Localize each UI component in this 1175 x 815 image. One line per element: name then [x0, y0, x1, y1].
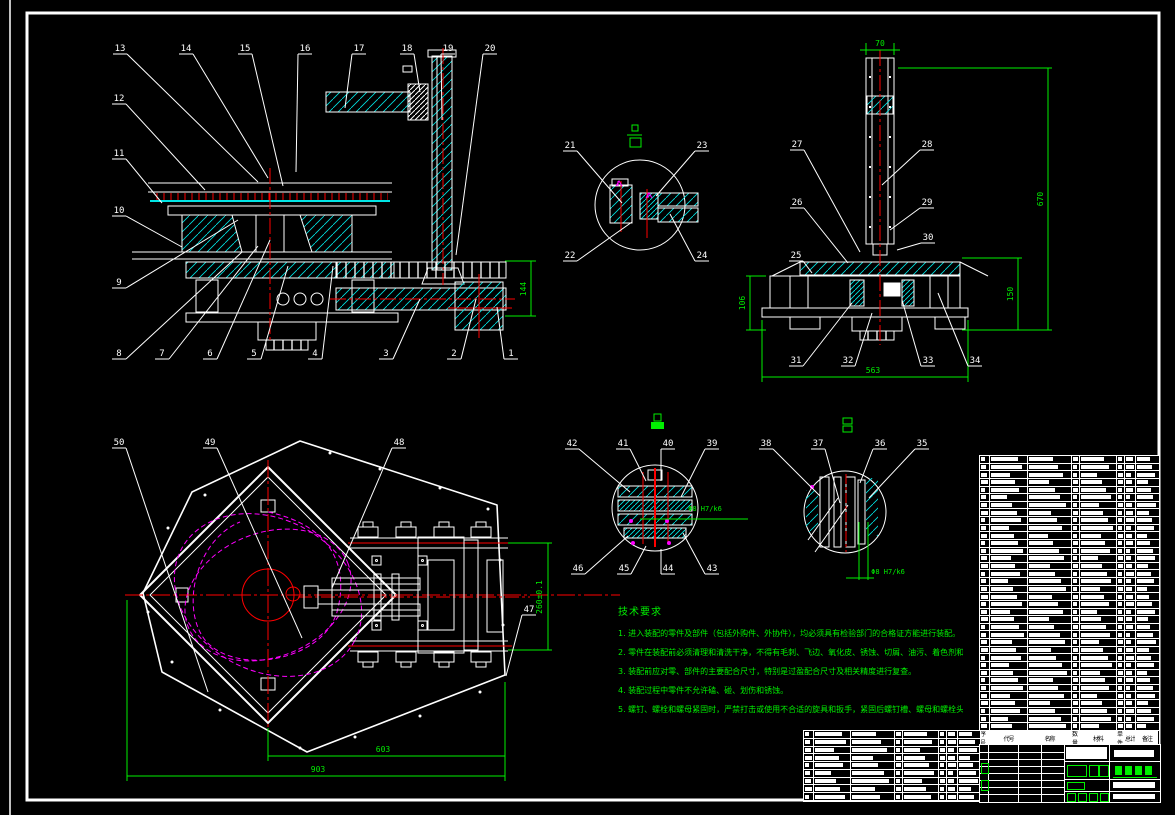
bom-cell	[903, 770, 940, 777]
bom-cell	[1080, 715, 1117, 722]
bom-cell	[1125, 586, 1136, 593]
bom-cell	[1072, 464, 1080, 471]
bom-cell	[1072, 517, 1080, 524]
bom-cell	[958, 770, 980, 777]
technical-requirements-title: 技术要求	[618, 603, 963, 618]
detail-view-bottom-right	[804, 471, 886, 553]
part-callout-20: 20	[456, 44, 497, 255]
bom-cell	[980, 586, 990, 593]
titleblock-green-cell	[1089, 765, 1099, 777]
bom-cell	[980, 715, 990, 722]
bom-cell	[990, 670, 1028, 677]
bom-cell	[980, 700, 990, 707]
bom-row	[804, 731, 980, 739]
bom-cell	[1125, 616, 1136, 623]
titleblock-row-line	[980, 780, 1064, 781]
bom-cell	[1117, 700, 1125, 707]
bom-cell	[1125, 517, 1136, 524]
bom-cell	[1136, 723, 1158, 730]
bom-cell	[980, 593, 990, 600]
part-callout-50: 50	[112, 438, 208, 692]
bom-cell	[1028, 456, 1072, 463]
bom-cell	[814, 754, 852, 761]
titleblock-green-cell	[1067, 765, 1087, 777]
bom-cell	[1125, 525, 1136, 532]
svg-text:46: 46	[573, 564, 584, 574]
bom-cell	[895, 785, 903, 792]
part-callout-41: 41	[616, 439, 646, 481]
bom-cell	[1080, 670, 1117, 677]
bom-row	[980, 471, 1159, 479]
part-callout-12: 12	[112, 94, 205, 190]
bom-cell	[1080, 616, 1117, 623]
bom-cell	[1028, 479, 1072, 486]
bom-cell	[990, 685, 1028, 692]
bom-cell	[1136, 479, 1158, 486]
part-callout-49: 49	[203, 438, 302, 638]
bom-cell	[1072, 639, 1080, 646]
bom-cell	[1117, 563, 1125, 570]
svg-text:48: 48	[394, 438, 405, 448]
bom-cell	[990, 563, 1028, 570]
bom-cell	[903, 762, 940, 769]
bom-cell	[958, 778, 980, 785]
bom-cell	[990, 586, 1028, 593]
bom-cell	[990, 570, 1028, 577]
bom-cell	[1136, 586, 1158, 593]
bom-cell	[1125, 609, 1136, 616]
bom-cell	[1072, 593, 1080, 600]
bom-header-2: 代号	[990, 731, 1028, 745]
bom-cell	[1125, 654, 1136, 661]
bom-cell	[1080, 677, 1117, 684]
bom-cell	[990, 654, 1028, 661]
bom-cell	[1072, 692, 1080, 699]
part-callout-36: 36	[860, 439, 887, 483]
bom-cell	[804, 747, 814, 754]
bom-cell	[1080, 532, 1117, 539]
bom-cell	[958, 785, 980, 792]
bom-cell	[980, 479, 990, 486]
bom-cell	[1080, 563, 1117, 570]
svg-text:36: 36	[875, 439, 886, 449]
bolt-holes	[147, 452, 505, 750]
titleblock-row-line	[1109, 779, 1160, 780]
bom-cell	[939, 793, 947, 800]
svg-text:9: 9	[116, 278, 121, 288]
bom-cell	[980, 662, 990, 669]
bom-cell	[1080, 540, 1117, 547]
bom-cell	[1125, 670, 1136, 677]
bom-row	[804, 754, 980, 762]
bom-cell	[1080, 692, 1117, 699]
titleblock-stamp-cell	[1066, 747, 1107, 759]
bom-cell	[1136, 540, 1158, 547]
dimension-text-670: 670	[1036, 192, 1045, 207]
bom-cell	[1080, 624, 1117, 631]
svg-text:49: 49	[205, 438, 216, 448]
svg-text:40: 40	[663, 439, 674, 449]
bom-cell	[990, 548, 1028, 555]
bom-cell	[804, 785, 814, 792]
parts-list-table	[979, 455, 1160, 731]
svg-text:12: 12	[114, 94, 125, 104]
titleblock-text-bar	[1113, 794, 1155, 799]
svg-text:45: 45	[619, 564, 630, 574]
bom-cell	[1136, 563, 1158, 570]
bom-row	[804, 785, 980, 793]
bom-cell	[1136, 647, 1158, 654]
bom-cell	[1136, 616, 1158, 623]
bom-cell	[1117, 715, 1125, 722]
bom-row	[980, 479, 1159, 487]
view-front-elevation	[132, 48, 515, 350]
bom-cell	[980, 631, 990, 638]
bom-cell	[1117, 616, 1125, 623]
bom-cell	[1117, 692, 1125, 699]
bom-cell	[895, 770, 903, 777]
bom-cell	[1028, 654, 1072, 661]
part-callout-47: 47	[506, 605, 536, 676]
bom-cell	[980, 563, 990, 570]
bom-cell	[1117, 525, 1125, 532]
svg-text:44: 44	[663, 564, 674, 574]
bom-cell	[980, 677, 990, 684]
bom-cell	[1117, 494, 1125, 501]
bom-cell	[1028, 509, 1072, 516]
bom-cell	[804, 793, 814, 800]
bom-cell	[1117, 708, 1125, 715]
titleblock-green-cell	[1067, 782, 1085, 790]
bom-cell	[1028, 593, 1072, 600]
bom-cell	[1117, 471, 1125, 478]
bom-row	[980, 532, 1159, 540]
bom-cell	[990, 555, 1028, 562]
bom-cell	[980, 570, 990, 577]
bom-cell	[939, 754, 947, 761]
bom-cell	[1028, 662, 1072, 669]
title-block	[979, 744, 1161, 803]
bom-cell	[1117, 685, 1125, 692]
svg-text:2: 2	[451, 349, 456, 359]
titleblock-row-line	[980, 759, 1064, 760]
bom-cell	[980, 525, 990, 532]
bom-cell	[1136, 532, 1158, 539]
bom-cell	[1028, 616, 1072, 623]
bom-cell	[939, 739, 947, 746]
bom-cell	[1072, 555, 1080, 562]
bom-cell	[903, 731, 940, 738]
dimension-text-70: 70	[875, 39, 885, 48]
dimension-text-903: 903	[311, 765, 326, 774]
bom-cell	[980, 555, 990, 562]
bom-row	[980, 624, 1159, 632]
bom-row	[980, 502, 1159, 510]
bom-cell	[990, 525, 1028, 532]
bom-cell	[990, 502, 1028, 509]
bom-cell	[814, 770, 852, 777]
bom-cell	[980, 601, 990, 608]
bom-cell	[1136, 555, 1158, 562]
bom-cell	[1125, 685, 1136, 692]
bom-cell	[1125, 692, 1136, 699]
bom-cell	[1028, 548, 1072, 555]
bom-cell	[1028, 685, 1072, 692]
bom-cell	[958, 739, 980, 746]
bom-cell	[1072, 540, 1080, 547]
bom-cell	[1125, 570, 1136, 577]
bom-cell	[939, 731, 947, 738]
bom-cell	[851, 770, 895, 777]
bom-cell	[947, 747, 958, 754]
titleblock-green-cell	[1078, 793, 1087, 802]
bom-cell	[1117, 624, 1125, 631]
bom-cell	[1125, 540, 1136, 547]
bom-cell	[990, 708, 1028, 715]
bom-header-6: 单件	[1117, 731, 1125, 745]
bom-cell	[990, 616, 1028, 623]
bom-cell	[895, 778, 903, 785]
bom-cell	[1125, 494, 1136, 501]
bom-cell	[903, 785, 940, 792]
bom-cell	[814, 778, 852, 785]
bom-cell	[1136, 654, 1158, 661]
svg-text:27: 27	[792, 140, 803, 150]
bom-cell	[980, 578, 990, 585]
bom-cell	[1125, 677, 1136, 684]
bom-cell	[1072, 631, 1080, 638]
view-plan	[125, 441, 620, 752]
bom-cell	[1080, 509, 1117, 516]
svg-text:23: 23	[697, 141, 708, 151]
bom-cell	[1125, 639, 1136, 646]
bom-cell	[1072, 685, 1080, 692]
bom-row	[980, 715, 1159, 723]
bom-cell	[958, 731, 980, 738]
svg-text:4: 4	[312, 349, 317, 359]
bom-cell	[1080, 555, 1117, 562]
bom-cell	[980, 654, 990, 661]
bom-cell	[1072, 586, 1080, 593]
detail-view-top	[595, 160, 698, 250]
svg-text:50: 50	[114, 438, 125, 448]
svg-text:33: 33	[923, 356, 934, 366]
bom-cell	[1080, 586, 1117, 593]
bom-cell	[1136, 456, 1158, 463]
part-callout-23: 23	[656, 141, 709, 196]
bom-cell	[804, 754, 814, 761]
bom-row	[804, 778, 980, 786]
bom-cell	[1136, 631, 1158, 638]
dimension-text-603: 603	[376, 745, 391, 754]
titleblock-row-line	[980, 773, 1064, 774]
bom-cell	[1080, 525, 1117, 532]
bom-cell	[990, 662, 1028, 669]
technical-requirements: 技术要求 1. 进入装配的零件及部件（包括外购件、外协件），均必须具有检验部门的…	[618, 603, 963, 719]
bom-cell	[814, 793, 852, 800]
drawing-title-underline	[1113, 777, 1157, 778]
bom-cell	[1028, 586, 1072, 593]
bom-cell	[1117, 570, 1125, 577]
bom-row	[980, 464, 1159, 472]
bom-row	[804, 770, 980, 778]
bom-cell	[1072, 715, 1080, 722]
bom-cell	[1125, 509, 1136, 516]
bom-cell	[1080, 708, 1117, 715]
part-callout-27: 27	[790, 140, 860, 252]
bom-cell	[1080, 700, 1117, 707]
bom-cell	[903, 739, 940, 746]
bom-cell	[804, 762, 814, 769]
bom-cell	[1028, 647, 1072, 654]
bom-row	[980, 631, 1159, 639]
bom-cell	[1125, 723, 1136, 730]
bom-cell	[1080, 456, 1117, 463]
bom-cell	[980, 502, 990, 509]
part-callout-48: 48	[332, 438, 406, 588]
bom-cell	[947, 731, 958, 738]
titleblock-green-cell	[1089, 793, 1098, 802]
bom-cell	[1080, 494, 1117, 501]
bom-cell	[1125, 700, 1136, 707]
bom-cell	[1028, 563, 1072, 570]
bom-cell	[980, 517, 990, 524]
bom-cell	[1080, 464, 1117, 471]
bom-cell	[1117, 631, 1125, 638]
svg-text:26: 26	[792, 198, 803, 208]
bom-cell	[990, 540, 1028, 547]
bom-cell	[1072, 662, 1080, 669]
bom-cell	[939, 762, 947, 769]
svg-text:8: 8	[116, 349, 121, 359]
bom-cell	[1125, 563, 1136, 570]
bom-cell	[1136, 700, 1158, 707]
bom-cell	[980, 647, 990, 654]
bom-cell	[1072, 525, 1080, 532]
part-callout-45: 45	[617, 546, 646, 574]
dimension-text-144: 144	[519, 282, 528, 297]
bom-cell	[1117, 548, 1125, 555]
bom-row	[980, 456, 1159, 464]
bom-cell	[1136, 692, 1158, 699]
bom-cell	[990, 487, 1028, 494]
titleblock-row-line	[1064, 761, 1109, 762]
bom-cell	[990, 578, 1028, 585]
bom-cell	[895, 793, 903, 800]
bom-cell	[1136, 715, 1158, 722]
bom-cell	[947, 762, 958, 769]
drawing-sheet: 1314151617181920121110987654321212322242…	[0, 0, 1175, 815]
bom-cell	[1072, 509, 1080, 516]
bom-cell	[990, 456, 1028, 463]
svg-text:47: 47	[524, 605, 535, 615]
dimension-text-106: 106	[738, 296, 747, 311]
bom-cell	[1117, 540, 1125, 547]
note-line: 1. 进入装配的零件及部件（包括外购件、外协件），均必须具有检验部门的合格证方能…	[618, 624, 963, 643]
svg-text:43: 43	[707, 564, 718, 574]
titleblock-row-line	[1064, 779, 1109, 780]
part-callout-33: 33	[902, 300, 935, 366]
titleblock-text-bar	[1114, 750, 1154, 757]
part-callout-22: 22	[563, 222, 632, 261]
bom-cell	[990, 464, 1028, 471]
svg-text:15: 15	[240, 44, 251, 54]
bom-cell	[990, 647, 1028, 654]
bom-cell	[990, 700, 1028, 707]
titleblock-green-cell	[1100, 793, 1109, 802]
bom-cell	[1136, 639, 1158, 646]
bom-cell	[895, 747, 903, 754]
titleblock-green-cell	[1067, 793, 1076, 802]
bom-cell	[1028, 670, 1072, 677]
bom-cell	[903, 747, 940, 754]
bom-cell	[851, 778, 895, 785]
drawing-title-glyph	[1115, 766, 1122, 775]
bom-cell	[980, 509, 990, 516]
svg-text:6: 6	[207, 349, 212, 359]
svg-text:41: 41	[618, 439, 629, 449]
svg-text:7: 7	[159, 349, 164, 359]
bom-cell	[1028, 715, 1072, 722]
bom-cell	[1072, 563, 1080, 570]
bom-row	[804, 793, 980, 801]
bom-cell	[851, 754, 895, 761]
bom-row	[980, 525, 1159, 533]
bom-cell	[895, 762, 903, 769]
bom-cell	[990, 601, 1028, 608]
svg-text:29: 29	[922, 198, 933, 208]
svg-text:22: 22	[565, 251, 576, 261]
bom-cell	[1136, 601, 1158, 608]
bom-cell	[1125, 502, 1136, 509]
bom-cell	[851, 739, 895, 746]
bom-cell	[851, 747, 895, 754]
bom-cell	[804, 731, 814, 738]
bom-cell	[958, 754, 980, 761]
dimension-text-Φ8 H7/k6: Φ8 H7/k6	[871, 568, 905, 576]
bom-cell	[1125, 715, 1136, 722]
titleblock-row-line	[980, 752, 1064, 753]
bom-cell	[814, 739, 852, 746]
bom-cell	[1028, 631, 1072, 638]
bom-cell	[1136, 517, 1158, 524]
bom-cell	[1072, 471, 1080, 478]
bom-cell	[1136, 609, 1158, 616]
bom-row	[980, 570, 1159, 578]
bom-cell	[1080, 601, 1117, 608]
bom-cell	[1028, 517, 1072, 524]
bom-cell	[1028, 624, 1072, 631]
bom-cell	[1136, 624, 1158, 631]
bom-cell	[958, 793, 980, 800]
part-callout-16: 16	[296, 44, 312, 172]
bom-cell	[990, 715, 1028, 722]
svg-text:18: 18	[402, 44, 413, 54]
bom-cell	[1117, 586, 1125, 593]
bom-cell	[1125, 479, 1136, 486]
bom-cell	[1072, 487, 1080, 494]
bom-cell	[1117, 723, 1125, 730]
bom-cell	[1080, 723, 1117, 730]
svg-text:39: 39	[707, 439, 718, 449]
bom-cell	[1125, 662, 1136, 669]
bom-cell	[1028, 540, 1072, 547]
bom-cell	[895, 731, 903, 738]
bom-cell	[1080, 487, 1117, 494]
bom-row	[980, 578, 1159, 586]
bom-cell	[939, 747, 947, 754]
bom-row	[980, 555, 1159, 563]
